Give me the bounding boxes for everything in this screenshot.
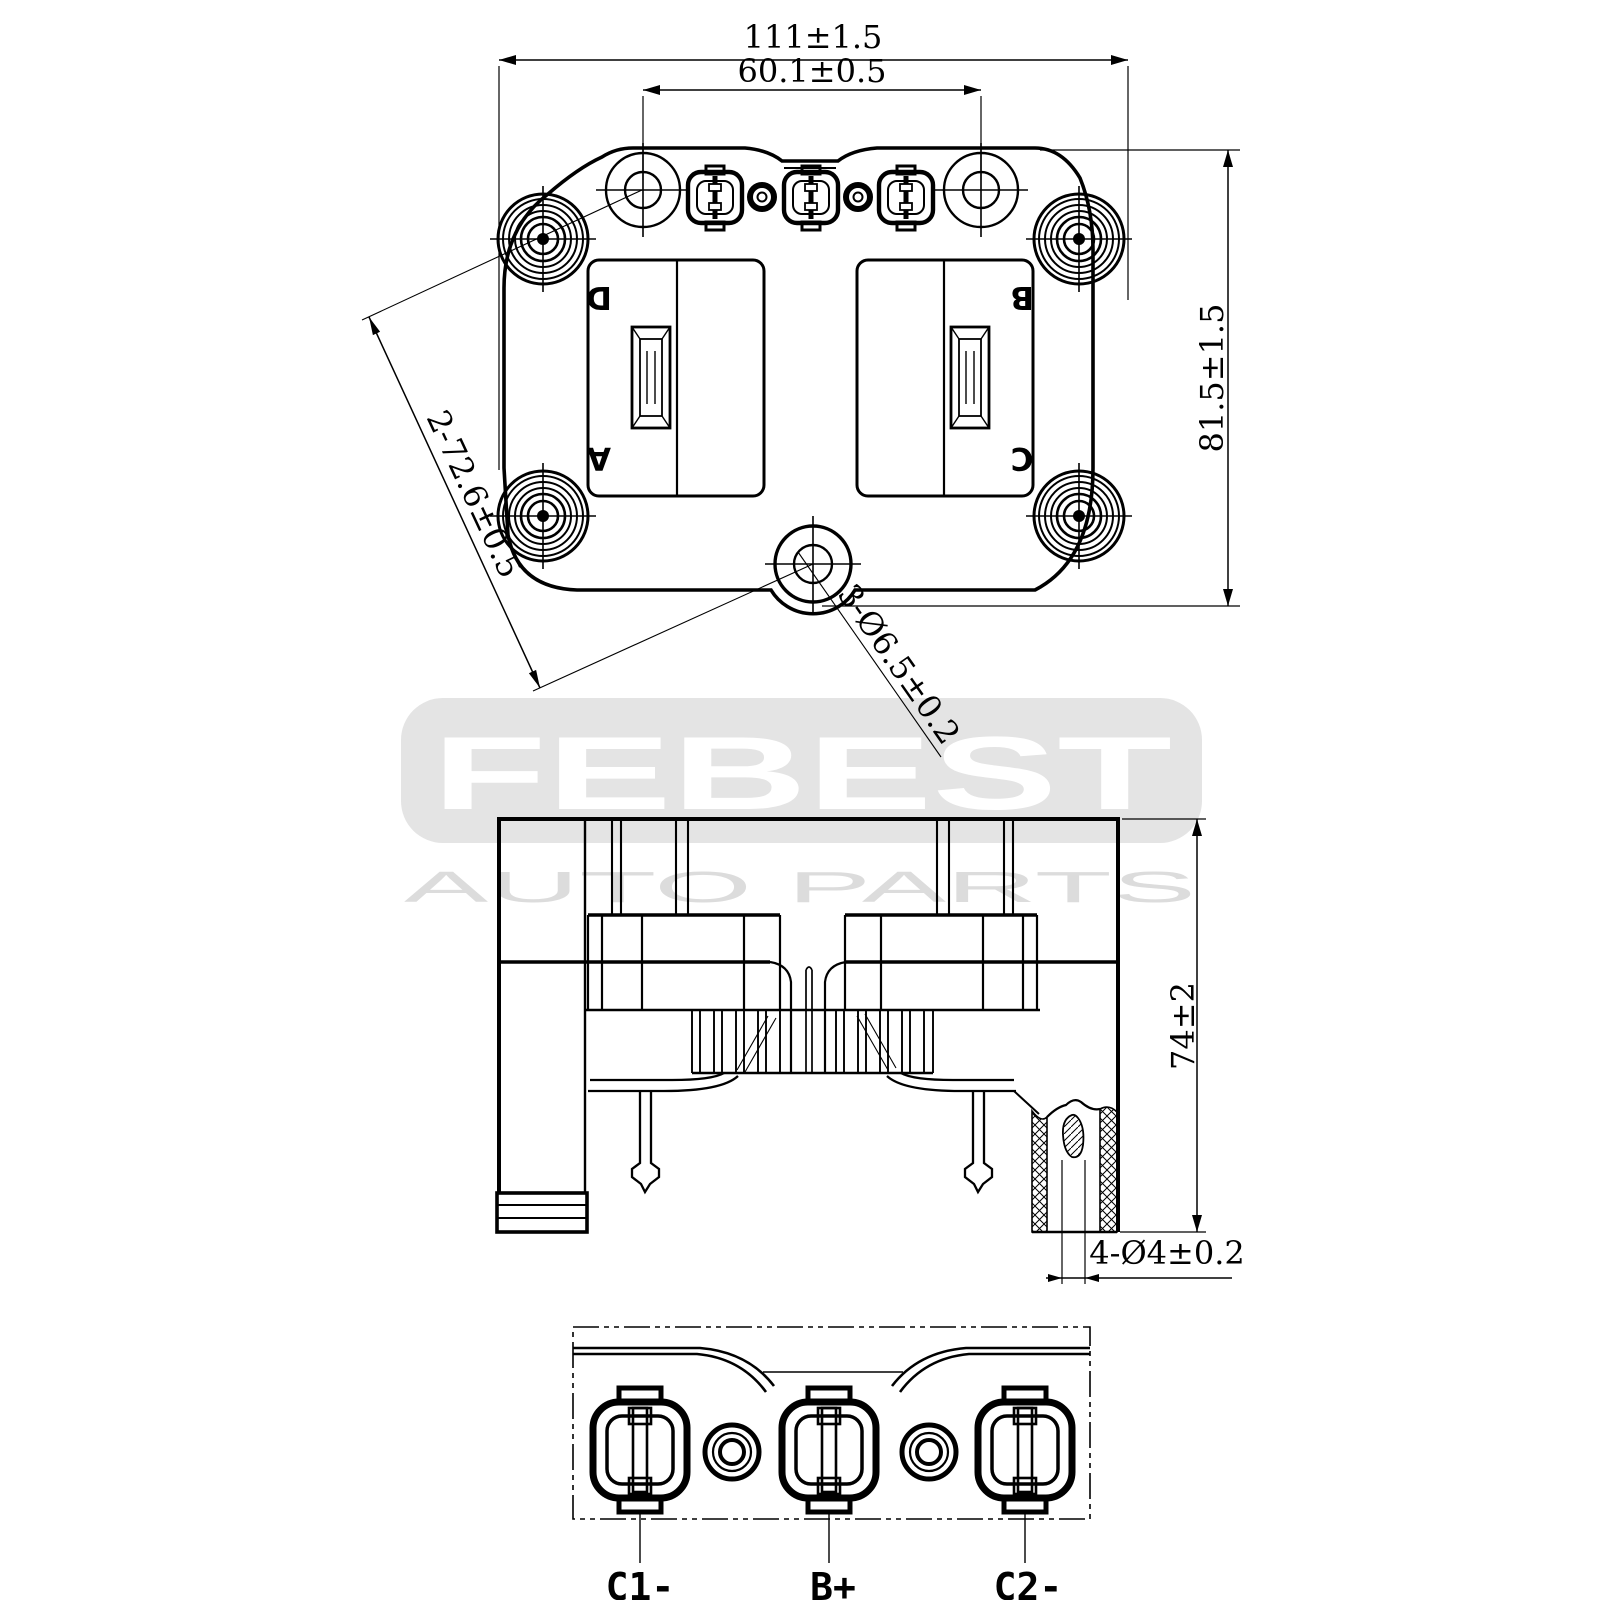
ring-bottom-right (902, 1425, 956, 1479)
side-shelves (588, 1073, 1039, 1114)
side-boot (1032, 1100, 1117, 1232)
watermark-tagline: AUTO PARTS (404, 863, 1196, 912)
arrowhead (529, 670, 540, 688)
socket-plan-left (688, 166, 742, 230)
bottom-view: C1- B+ C2- (573, 1327, 1090, 1600)
coil-block-right: B C (857, 260, 1034, 496)
terminal-label-c2: C2- (994, 1565, 1063, 1600)
watermark-brand: FEBEST (432, 716, 1172, 832)
ring-bottom-left (705, 1425, 759, 1479)
side-leg-right (965, 1091, 992, 1192)
dim-output-hole-text: 4-Ø4±0.2 (1089, 1234, 1244, 1272)
terminal-c2 (978, 1388, 1072, 1512)
terminal-label-c1: C1- (606, 1565, 675, 1600)
arrowhead (1223, 589, 1233, 606)
coil-letter-c: C (1011, 440, 1034, 476)
terminal-b (782, 1388, 876, 1512)
terminal-label-b: B+ (810, 1565, 856, 1600)
terminal-c1 (593, 1388, 687, 1512)
coil-letter-b: B (1010, 279, 1034, 315)
arrowhead (1111, 55, 1128, 65)
dim-hole-pitch-text: 60.1±0.5 (738, 52, 887, 90)
plan-view: D A B C (490, 143, 1132, 614)
socket-plan-right (879, 166, 933, 230)
socket-plan-center (784, 166, 838, 230)
arrowhead (1192, 1215, 1202, 1232)
arrowhead (643, 85, 660, 95)
side-left-foot (497, 1193, 587, 1232)
arrowhead (1048, 1274, 1062, 1282)
dim-overall-height-text: 81.5±1.5 (1193, 304, 1231, 453)
coil-block-left: D A (586, 260, 764, 496)
arrowhead (499, 55, 516, 65)
tower-bottom-right (1026, 463, 1132, 569)
dim-output-hole: 4-Ø4±0.2 (1046, 1160, 1245, 1284)
watermark: FEBEST AUTO PARTS (401, 698, 1202, 912)
arrowhead (1223, 150, 1233, 167)
arrowhead (369, 317, 380, 335)
arrowhead (1085, 1274, 1099, 1282)
side-leg-left (632, 1091, 659, 1192)
ignition-coil-technical-drawing: FEBEST AUTO PARTS (0, 0, 1600, 1600)
ring-plan-left (750, 185, 774, 209)
dim-overall-width-text: 111±1.5 (744, 18, 883, 56)
tower-top-right (1026, 186, 1132, 292)
bottom-cable-profile (573, 1348, 1090, 1392)
dim-diagonal-pitch-text: 2-72.6±0.5 (419, 404, 530, 583)
side-center-bore (770, 962, 846, 1073)
plan-dimensions: 111±1.5 60.1±0.5 81.5±1.5 2-72.6±0.5 (362, 18, 1240, 757)
dim-side-height-text: 74±2 (1164, 982, 1202, 1070)
ring-plan-right (846, 185, 870, 209)
arrowhead (964, 85, 981, 95)
coil-letter-d: D (586, 279, 612, 315)
drawing-page: FEBEST AUTO PARTS (0, 0, 1600, 1600)
coil-letter-a: A (587, 440, 611, 476)
